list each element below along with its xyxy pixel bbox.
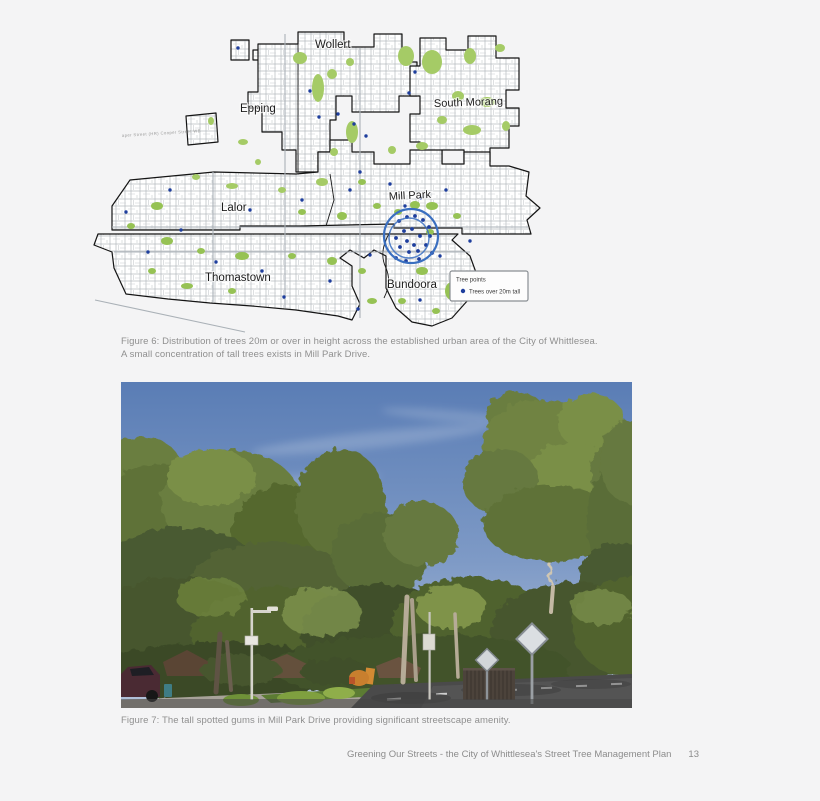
figure6-caption-line1: Figure 6: Distribution of trees 20m or o… <box>121 336 691 349</box>
page-number: 13 <box>688 749 699 760</box>
document-page: Wollert Epping South Morang Mill Park La… <box>0 0 820 801</box>
page-footer: Greening Our Streets - the City of Whitt… <box>121 749 699 760</box>
map-label-epping: Epping <box>240 103 276 115</box>
map-label-mill-park: Mill Park <box>389 189 432 203</box>
fence <box>463 668 515 700</box>
figure6-map: Wollert Epping South Morang Mill Park La… <box>85 0 545 335</box>
map-label-bundoora: Bundoora <box>387 279 437 291</box>
map-label-wollert: Wollert <box>315 39 351 51</box>
bin <box>164 684 172 697</box>
footer-title: Greening Our Streets - the City of Whitt… <box>347 749 671 760</box>
figure7-photo <box>121 382 632 708</box>
map-label-south-morang: South Morang <box>434 96 503 110</box>
road-shadow <box>121 699 632 708</box>
map-label-lalor: Lalor <box>221 202 247 214</box>
figure6-caption-line2: A small concentration of tall trees exis… <box>121 349 691 362</box>
map-label-thomastown: Thomastown <box>205 272 271 284</box>
figure6-caption: Figure 6: Distribution of trees 20m or o… <box>121 336 691 361</box>
legend-tree-point-icon <box>461 289 465 293</box>
legend-item-label: Trees over 20m tall <box>469 290 520 296</box>
figure7-caption: Figure 7: The tall spotted gums in Mill … <box>121 715 691 728</box>
map-legend: Tree points Trees over 20m tall <box>450 271 528 301</box>
figure7-caption-text: Figure 7: The tall spotted gums in Mill … <box>121 715 691 728</box>
legend-title: Tree points <box>456 278 486 284</box>
